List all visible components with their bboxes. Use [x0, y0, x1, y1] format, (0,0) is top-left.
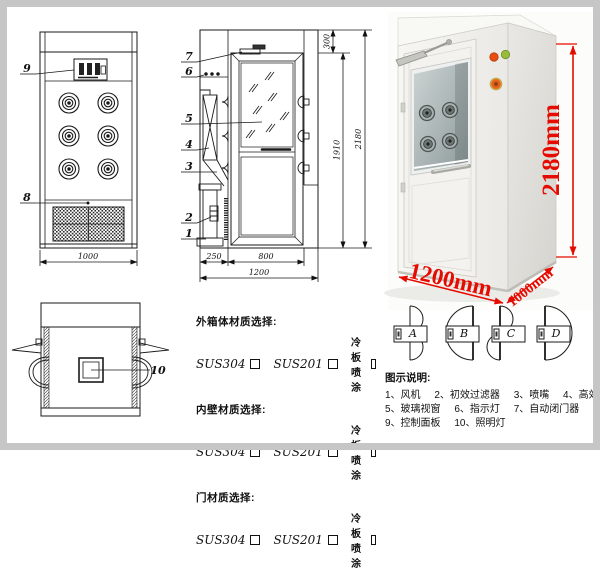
dim-800-label: 800: [258, 252, 273, 261]
legend-item: 2、初效过滤器: [434, 390, 500, 401]
dim-250-label: 250: [205, 252, 221, 261]
front-callouts: 9 8: [20, 62, 88, 204]
legend-line: 9、控制面板 10、照明灯: [385, 417, 593, 431]
door-hinge: [401, 183, 405, 192]
option-label: SUS201: [273, 357, 322, 371]
option-label: 冷板喷涂: [351, 334, 366, 394]
legend-item: 4、高效过滤器: [563, 390, 600, 401]
door-type-b-label: B: [459, 327, 468, 340]
top-view-drawing: 10: [12, 303, 169, 416]
checkbox: [328, 535, 338, 545]
callout-9: 9: [23, 62, 31, 75]
side-bottom-dimensions: 250 800 1200: [200, 248, 318, 282]
legend-item: 8、红外线感应器: [593, 404, 600, 415]
material-selection-block: 外箱体材质选择: SUS304 SUS201 冷板喷涂 内壁材质选择: SUS3…: [196, 314, 386, 578]
callout-3: 3: [185, 160, 193, 173]
legend-line: 5、玻璃视窗 6、指示灯 7、自动闭门器 8、红外线感应器: [385, 403, 593, 417]
side-nozzle-bumps: [222, 96, 309, 174]
material-option-row: SUS304 SUS201 冷板喷涂: [196, 422, 386, 482]
legend-item: 7、自动闭门器: [514, 404, 580, 415]
open-door-wings: [12, 339, 169, 388]
door-type-icons: A B C D: [394, 306, 572, 360]
material-section-title: 门材质选择:: [196, 490, 386, 505]
callout-7: 7: [185, 50, 193, 63]
dim-2180-label: 2180: [354, 129, 363, 150]
door-type-c-icon: C: [487, 306, 525, 360]
dim-1910-label: 1910: [333, 140, 342, 160]
front-nozzles: [59, 93, 118, 179]
legend-title: 图示说明:: [385, 370, 593, 385]
callout-8: 8: [23, 191, 31, 204]
checkbox: [250, 535, 260, 545]
checkbox: [328, 359, 338, 369]
door-type-d-icon: D: [537, 306, 572, 360]
material-section-title: 内壁材质选择:: [196, 402, 386, 417]
green-indicator-light: [501, 50, 509, 58]
material-option-row: SUS304 SUS201 冷板喷涂: [196, 510, 386, 570]
side-callouts: 7 6 5 4 3 2 1: [181, 50, 262, 240]
control-panel: [74, 59, 107, 80]
legend-item: 9、控制面板: [385, 418, 441, 429]
checkbox: [371, 447, 376, 457]
door-hinge: [401, 103, 405, 112]
material-section-title: 外箱体材质选择:: [196, 314, 386, 329]
callout-6: 6: [185, 65, 193, 78]
door-drawing: [231, 45, 303, 245]
photo-height-label: 2180mm: [538, 104, 565, 196]
material-option-row: SUS304 SUS201 冷板喷涂: [196, 334, 386, 394]
glass-hatch-marks: [246, 72, 289, 138]
legend-block: 图示说明: 1、风机 2、初效过滤器 3、喷嘴 4、高效过滤器 5、玻璃视窗 6…: [385, 370, 593, 431]
option-label: SUS304: [196, 533, 245, 547]
red-indicator-light: [490, 53, 498, 61]
door-type-a-icon: A: [394, 306, 427, 360]
checkbox: [328, 447, 338, 457]
legend-item: 1、风机: [385, 390, 421, 401]
air-grille: [53, 207, 124, 241]
legend-line: 1、风机 2、初效过滤器 3、喷嘴 4、高效过滤器: [385, 389, 593, 403]
callout-4: 4: [185, 138, 193, 151]
callout-2: 2: [184, 211, 193, 224]
callout-5: 5: [185, 112, 193, 125]
checkbox: [250, 359, 260, 369]
callout-10: 10: [150, 364, 166, 377]
side-height-dimensions: 300 1910 2180: [318, 30, 372, 248]
front-view-drawing: 1000 9 8: [20, 32, 137, 266]
front-width-dimension: 1000: [40, 250, 137, 266]
legend-item: 5、玻璃视窗: [385, 404, 441, 415]
option-label: SUS201: [273, 533, 322, 547]
legend-item: 10、照明灯: [454, 418, 505, 429]
legend-item: 6、指示灯: [454, 404, 500, 415]
equipment-column: [197, 73, 228, 246]
photo-door: [401, 39, 476, 277]
option-label: SUS201: [273, 445, 322, 459]
checkbox: [371, 535, 376, 545]
option-label: SUS304: [196, 357, 245, 371]
door-type-d-label: D: [551, 327, 561, 340]
dim-1200-label: 1200: [249, 268, 269, 277]
checkbox: [371, 359, 376, 369]
door-type-a-label: A: [408, 327, 417, 340]
door-type-b-icon: B: [446, 306, 479, 360]
callout-1: 1: [185, 227, 193, 240]
option-label: SUS304: [196, 445, 245, 459]
product-photo: 2180mm 1200mm 1000mm: [384, 12, 594, 311]
option-label: 冷板喷涂: [351, 422, 366, 482]
dim-1000-label: 1000: [78, 252, 98, 261]
side-view-drawing: 7 6 5 4 3 2 1 250 800 1200: [181, 30, 372, 282]
legend-item: 3、喷嘴: [514, 390, 550, 401]
option-label: 冷板喷涂: [351, 510, 366, 570]
checkbox: [250, 447, 260, 457]
dim-300-label: 300: [323, 34, 332, 49]
door-type-c-label: C: [507, 327, 516, 340]
